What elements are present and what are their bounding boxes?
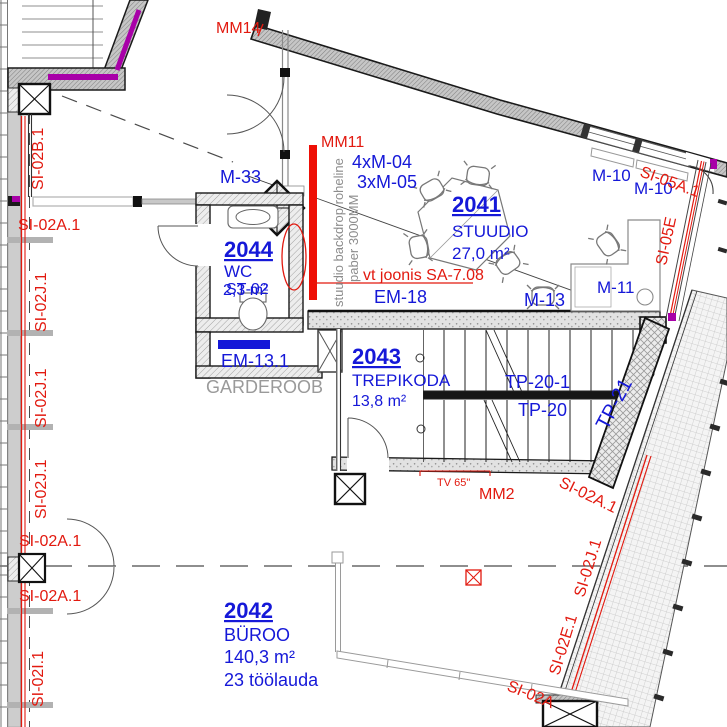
diagonal-dashed-line xyxy=(62,96,233,162)
label-tv65: TV 65" xyxy=(437,477,470,489)
floor-plan-screenshot: MM14MM11M-334xM-043xM-052041STUUDIO27,0 … xyxy=(0,0,727,727)
label-mm11: MM11 xyxy=(321,134,364,151)
door-arc xyxy=(158,226,198,266)
wc-north-wall xyxy=(196,193,303,205)
label-si02j1-w1: SI-02J.1 xyxy=(33,272,50,332)
room-2041-area: 27,0 m² xyxy=(452,244,510,263)
label-m11: M-11 xyxy=(597,278,634,297)
door-post xyxy=(280,150,290,159)
room-2041-name: STUUDIO xyxy=(452,222,529,241)
label-em13-1: EM-13.1 xyxy=(221,351,289,371)
room-2042-name: BÜROO xyxy=(224,625,290,645)
entry-corridor xyxy=(33,196,205,207)
label-st02: ST-02 xyxy=(226,281,269,298)
handrail-post xyxy=(416,354,424,362)
wc-sink-basin xyxy=(236,210,270,225)
room-2043-name: TREPIKODA xyxy=(352,371,451,390)
label-garderoob: GARDEROOB xyxy=(206,377,323,397)
label-m33: M-33 xyxy=(220,167,261,187)
label-si02j1-w2: SI-02J.1 xyxy=(33,368,50,428)
handrail-post xyxy=(417,425,425,433)
label-si02a1-w2: SI-02A.1 xyxy=(19,588,81,605)
overhead-beam xyxy=(33,197,133,206)
magenta-strip xyxy=(668,313,676,321)
stool xyxy=(637,289,653,305)
northwest-walls xyxy=(8,0,148,206)
label-mm2: MM2 xyxy=(479,486,515,503)
room-2044-name: WC xyxy=(224,262,252,281)
label-tp20: TP-20 xyxy=(518,400,567,420)
red-axis-marker xyxy=(466,570,481,585)
label-si02a1-w1: SI-02A.1 xyxy=(19,533,81,550)
room-2043-area: 13,8 m² xyxy=(352,393,407,410)
backdrop-red-bar xyxy=(309,145,317,300)
chair xyxy=(588,225,626,265)
label-3xm05: 3xM-05 xyxy=(357,172,417,192)
label-4xm04: 4xM-04 xyxy=(352,152,412,172)
room-2041-number: 2041 xyxy=(452,192,501,217)
label-si02i1: SI-02I.1 xyxy=(30,651,47,707)
door-arc xyxy=(348,418,388,458)
label-si02b1: SI-02B.1 xyxy=(30,128,47,190)
magenta-strip xyxy=(48,74,118,80)
door-post xyxy=(280,68,290,77)
label-m10-a: M-10 xyxy=(592,166,631,185)
door-arc xyxy=(227,95,284,152)
room-2042-number: 2042 xyxy=(224,598,273,623)
floor-plan-drawing: MM14MM11M-334xM-043xM-052041STUUDIO27,0 … xyxy=(0,0,727,727)
desk xyxy=(591,148,634,167)
stair-door-gap xyxy=(347,456,389,474)
label-vt-joonis: vt joonis SA-7.08 xyxy=(363,267,484,284)
stair-north-wall xyxy=(308,311,660,329)
label-si02j1-w3: SI-02J.1 xyxy=(33,459,50,519)
door-post xyxy=(133,196,142,207)
door-arc xyxy=(227,77,284,134)
wc-east-wall xyxy=(289,205,303,325)
slanted-exterior-wall xyxy=(104,0,148,70)
magenta-strip xyxy=(12,196,20,202)
label-si02a1-nw: SI-02A.1 xyxy=(18,217,80,234)
label-mm14: MM14 xyxy=(216,20,261,37)
room-2042-note: 23 töölauda xyxy=(224,670,319,690)
label-backdrop-line1: stuudio backdrop roheline xyxy=(331,158,346,307)
wc-toilet-bowl xyxy=(239,298,267,330)
label-backdrop-line2: paber 3000MM xyxy=(346,195,361,282)
wc-door-gap xyxy=(195,224,211,266)
label-em18: EM-18 xyxy=(374,287,427,307)
em13-blue-marker xyxy=(218,340,270,349)
room-2043-number: 2043 xyxy=(352,344,401,369)
label-tp20-1: TP-20-1 xyxy=(505,372,570,392)
room-2044-number: 2044 xyxy=(224,237,274,262)
sliding-door-leaf xyxy=(142,199,196,204)
label-m13: M-13 xyxy=(524,290,565,310)
room-2042-area: 140,3 m² xyxy=(224,647,295,667)
